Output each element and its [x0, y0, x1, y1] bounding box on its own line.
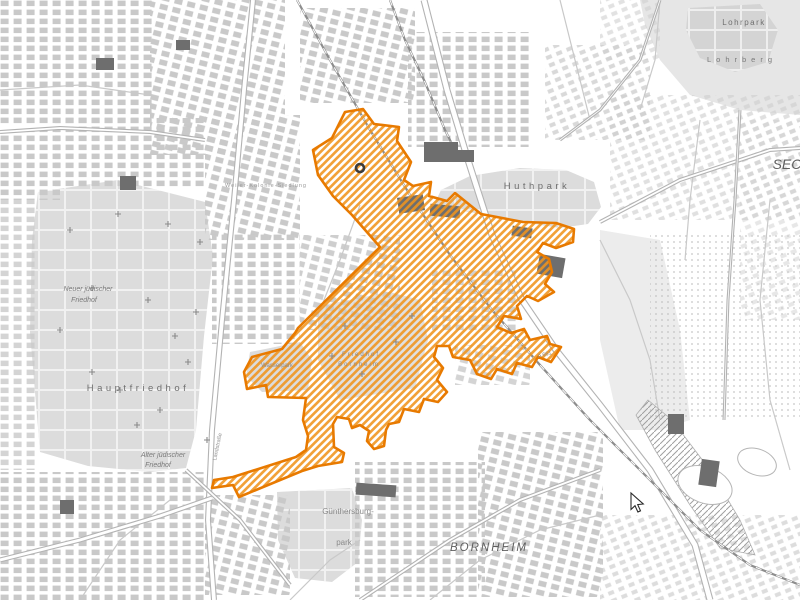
dark-building — [96, 58, 114, 70]
building-cluster — [205, 495, 290, 595]
map-label: BORNHEIM — [450, 542, 528, 554]
map-label: Hauptfriedhof — [87, 383, 190, 394]
map-label: Friedhof — [145, 462, 172, 469]
city-map: HauptfriedhofAlter jüdischerFriedhofNeue… — [0, 0, 800, 600]
dark-building — [176, 40, 190, 50]
map-label: Lohrpark — [722, 18, 766, 27]
park-paths-hauptfriedhof — [30, 180, 213, 472]
map-label: SEC — [773, 156, 800, 172]
dark-building — [698, 459, 719, 487]
map-canvas: HauptfriedhofAlter jüdischerFriedhofNeue… — [0, 0, 800, 600]
dark-building — [60, 500, 74, 514]
map-label: Günthersburg- — [322, 507, 374, 516]
building-cluster — [408, 32, 533, 147]
building-cluster — [0, 130, 60, 200]
map-label: Lohrberg — [707, 55, 777, 64]
building-cluster — [0, 472, 205, 600]
map-label: Bornheim — [338, 362, 380, 368]
building-cluster — [0, 0, 155, 125]
dark-building — [120, 176, 136, 190]
map-label: Friedhof — [71, 297, 98, 304]
building-cluster — [205, 115, 300, 240]
map-label: Neuer jüdischer — [63, 286, 113, 293]
building-cluster — [0, 200, 38, 470]
map-label: Friedhof — [342, 352, 380, 358]
map-label: Wasserpark — [261, 363, 294, 369]
map-label: park — [336, 538, 353, 547]
map-label: Alter jüdischer — [140, 452, 186, 459]
map-label: Huthpark — [504, 181, 571, 192]
dark-building — [668, 414, 684, 434]
map-label: Weiler-Kolonie-Siedlung — [225, 183, 307, 189]
dark-building — [452, 150, 474, 162]
